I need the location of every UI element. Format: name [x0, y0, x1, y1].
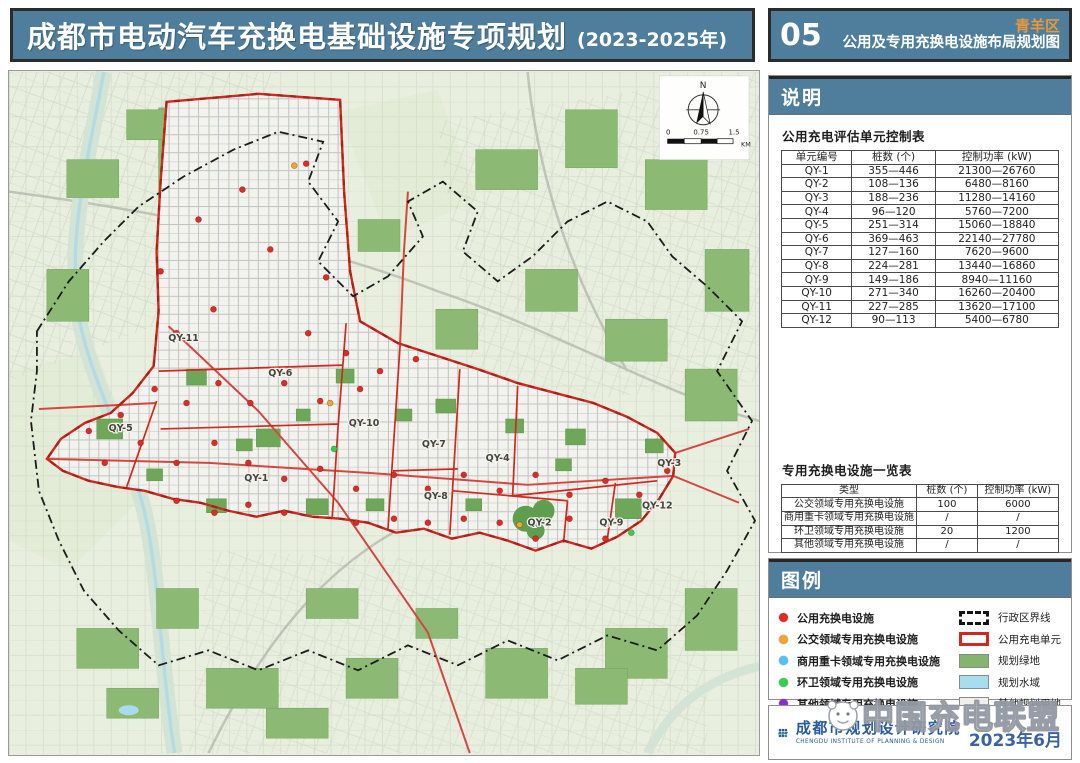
legend-item-public: 公用充换电设施	[779, 607, 959, 629]
institute-name-en: CHENGDU INSTITUTE OF PLANNING & DESIGN	[796, 739, 961, 745]
legend-panel: 图例 公用充换电设施 公交领域专用充换电设施 商用重卡领域专用充换电设施 环卫领…	[768, 558, 1072, 700]
legend-item-bus: 公交领域专用充换电设施	[779, 629, 959, 651]
facility-dot-public	[533, 536, 539, 542]
table-cell: 22140—27780	[935, 232, 1058, 246]
map-unit-label-QY-7: QY-7	[422, 439, 446, 450]
table-cell: 13440—16860	[935, 259, 1058, 273]
table-row: QY-5251—31415060—18840	[782, 218, 1059, 232]
facility-dot-public	[86, 428, 92, 434]
notes-panel: 说明 公用充电评估单元控制表 单元编号桩数 (个)控制功率 (kW)QY-135…	[768, 75, 1072, 553]
map-unit-label-QY-12: QY-12	[642, 501, 673, 512]
footer-box: 成都市规划设计研究院 CHENGDU INSTITUTE OF PLANNING…	[768, 705, 1072, 760]
special-charging-table: 类型桩数 (个)控制功率 (kW)公交领域专用充换电设施1006000商用重卡领…	[781, 484, 1059, 553]
legend-label: 规划绿地	[998, 653, 1040, 668]
facility-dot-public	[303, 161, 309, 167]
facility-dot-public	[567, 516, 573, 522]
table-cell: 224—281	[852, 259, 935, 273]
table-cell: 1200	[977, 525, 1058, 539]
facility-dot-public	[247, 400, 253, 406]
truck-dot-icon	[779, 656, 788, 665]
facility-dot-public	[152, 386, 158, 392]
north-label: N	[700, 81, 707, 91]
legend-label: 行政区界线	[998, 610, 1051, 625]
facility-dot-public	[174, 498, 180, 504]
table-cell: /	[977, 539, 1058, 553]
public-table-title: 公用充电评估单元控制表	[782, 126, 1071, 145]
legend-label: 公交领域专用充换电设施	[797, 631, 918, 647]
facility-dot-public	[210, 306, 216, 312]
facility-dot-public	[533, 472, 539, 478]
facility-dot-public	[245, 460, 251, 466]
table-cell: QY-11	[782, 300, 852, 314]
planning-map[interactable]: QY-11QY-5QY-6QY-1QY-10QY-7QY-4QY-8QY-2QY…	[8, 70, 760, 756]
legend-item-admin-boundary: 行政区界线	[959, 607, 1063, 629]
legend-item-truck: 商用重卡领域专用充换电设施	[779, 650, 959, 672]
table-row: QY-10271—34016260—20400	[782, 286, 1059, 300]
facility-dot-public	[461, 516, 467, 522]
legend-panel-title: 图例	[769, 559, 1071, 598]
facility-dot-public	[391, 516, 397, 522]
table-row: 单元编号桩数 (个)控制功率 (kW)	[782, 151, 1059, 165]
table-cell: 8940—11160	[935, 273, 1058, 287]
table-cell: 公交领域专用充换电设施	[782, 498, 917, 512]
facility-dot-public	[636, 492, 642, 498]
water-pond	[119, 705, 139, 715]
facility-dot-public	[245, 502, 251, 508]
table-cell: 6000	[977, 498, 1058, 512]
legend-item-green-land: 规划绿地	[959, 650, 1063, 672]
table-cell: QY-6	[782, 232, 852, 246]
sheet-number: 05	[780, 18, 822, 53]
table-cell: 控制功率 (kW)	[935, 151, 1058, 165]
table-cell: 227—285	[852, 300, 935, 314]
table-cell: 21300—26760	[935, 164, 1058, 178]
table-cell: QY-10	[782, 286, 852, 300]
facility-dot-public	[317, 466, 323, 472]
facility-dot-public	[425, 520, 431, 526]
institute-text: 成都市规划设计研究院 CHENGDU INSTITUTE OF PLANNING…	[796, 720, 961, 745]
public-dot-icon	[779, 613, 788, 622]
page-title: 成都市电动汽车充换电基础设施专项规划	[27, 14, 567, 56]
table-cell: 桩数 (个)	[917, 484, 978, 498]
facility-dot-public	[602, 478, 608, 484]
planning-sheet: 成都市电动汽车充换电基础设施专项规划 (2023-2025年) 05 青羊区 公…	[0, 0, 1080, 763]
map-canvas: QY-11QY-5QY-6QY-1QY-10QY-7QY-4QY-8QY-2QY…	[9, 71, 759, 755]
facility-dot-public	[138, 440, 144, 446]
table-cell: 商用重卡领域专用充换电设施	[782, 511, 917, 525]
table-cell: 90—113	[852, 314, 935, 328]
facility-dot-public	[391, 472, 397, 478]
facility-dot-public	[281, 476, 287, 482]
table-row: 环卫领域专用充换电设施201200	[782, 525, 1059, 539]
table-cell: 20	[917, 525, 978, 539]
table-cell: 188—236	[852, 191, 935, 205]
sheet-name: 公用及专用充换电设施布局规划图	[843, 35, 1061, 52]
map-unit-label-QY-2: QY-2	[528, 518, 552, 529]
facility-dot-public	[281, 380, 287, 386]
facility-dot-public	[357, 386, 363, 392]
facility-dot-public	[497, 520, 503, 526]
table-row: QY-9149—1868940—11160	[782, 273, 1059, 287]
table-row: 公交领域专用充换电设施1006000	[782, 498, 1059, 512]
facility-dot-public	[184, 400, 190, 406]
facility-dot-bus	[517, 522, 523, 528]
facility-dot-public	[567, 492, 573, 498]
facility-dot-bus	[291, 163, 297, 169]
special-table-title: 专用充换电设施一览表	[782, 460, 1071, 479]
main-title-bar: 成都市电动汽车充换电基础设施专项规划 (2023-2025年)	[10, 8, 755, 62]
institute-logo	[778, 713, 788, 753]
table-cell: 环卫领域专用充换电设施	[782, 525, 917, 539]
facility-dot-public	[377, 368, 383, 374]
water-icon	[959, 675, 989, 689]
table-cell: 其他领域专用充换电设施	[782, 539, 917, 553]
table-cell: 369—463	[852, 232, 935, 246]
table-row: QY-3188—23611280—14160	[782, 191, 1059, 205]
facility-dot-public	[497, 488, 503, 494]
legend-item-water: 规划水域	[959, 672, 1063, 694]
table-cell: 108—136	[852, 178, 935, 192]
table-cell: QY-1	[782, 164, 852, 178]
facility-dot-public	[413, 356, 419, 362]
table-cell: 127—160	[852, 246, 935, 260]
district-name: 青羊区	[843, 18, 1061, 35]
table-cell: 15060—18840	[935, 218, 1058, 232]
facility-dot-public	[281, 510, 287, 516]
scale-tick-max: 1.5	[729, 129, 740, 137]
table-cell: 控制功率 (kW)	[977, 484, 1058, 498]
map-unit-label-QY-1: QY-1	[244, 473, 268, 484]
facility-dot-public	[353, 486, 359, 492]
legend-label: 环卫领域专用充换电设施	[797, 674, 918, 690]
table-row: QY-8224—28113440—16860	[782, 259, 1059, 273]
table-cell: 单元编号	[782, 151, 852, 165]
legend-label: 公用充换电设施	[797, 610, 874, 626]
table-cell: 96—120	[852, 205, 935, 219]
map-unit-label-QY-11: QY-11	[168, 333, 199, 344]
table-cell: 7620—9600	[935, 246, 1058, 260]
sheet-header: 05 青羊区 公用及专用充换电设施布局规划图	[768, 8, 1072, 62]
table-row: QY-1290—1135400—6780	[782, 314, 1059, 328]
legend-label: 公用充电单元	[998, 632, 1061, 647]
facility-dot-public	[102, 460, 108, 466]
legend-item-sanitation: 环卫领域专用充换电设施	[779, 672, 959, 694]
table-row: QY-7127—1607620—9600	[782, 246, 1059, 260]
table-cell: /	[977, 511, 1058, 525]
table-cell: QY-3	[782, 191, 852, 205]
scale-tick-mid: 0.75	[693, 129, 709, 137]
map-unit-label-QY-6: QY-6	[268, 368, 292, 379]
sanitation-dot-icon	[779, 678, 788, 687]
map-unit-label-QY-10: QY-10	[349, 418, 380, 429]
facility-dot-public	[353, 520, 359, 526]
facility-dot-public	[211, 510, 217, 516]
map-unit-label-QY-3: QY-3	[657, 458, 681, 469]
table-row: 其他领域专用充换电设施//	[782, 539, 1059, 553]
facility-dot-public	[323, 274, 329, 280]
legend-body: 公用充换电设施 公交领域专用充换电设施 商用重卡领域专用充换电设施 环卫领域专用…	[769, 598, 1071, 715]
legend-area-items: 行政区界线 公用充电单元 规划绿地 规划水域 其他规划用地	[959, 607, 1063, 715]
facility-dot-public	[118, 412, 124, 418]
table-cell: 5760—7200	[935, 205, 1058, 219]
table-cell: 桩数 (个)	[852, 151, 935, 165]
table-row: QY-11227—28513620—17100	[782, 300, 1059, 314]
legend-item-charging-unit: 公用充电单元	[959, 629, 1063, 651]
table-cell: QY-5	[782, 218, 852, 232]
table-cell: 6480—8160	[935, 178, 1058, 192]
facility-dot-public	[343, 350, 349, 356]
map-unit-label-QY-9: QY-9	[599, 518, 623, 529]
table-row: QY-2108—1366480—8160	[782, 178, 1059, 192]
table-cell: QY-7	[782, 246, 852, 260]
facility-dot-public	[305, 330, 311, 336]
table-row: 类型桩数 (个)控制功率 (kW)	[782, 484, 1059, 498]
legend-point-items: 公用充换电设施 公交领域专用充换电设施 商用重卡领域专用充换电设施 环卫领域专用…	[779, 607, 959, 715]
north-scale-box: N 0 0.75 1.5 KM	[659, 76, 751, 160]
table-cell: 16260—20400	[935, 286, 1058, 300]
facility-dot-public	[267, 246, 273, 252]
page-title-years: (2023-2025年)	[577, 25, 727, 52]
facility-dot-public	[317, 398, 323, 404]
table-cell: 271—340	[852, 286, 935, 300]
public-charging-table: 单元编号桩数 (个)控制功率 (kW)QY-1355—44621300—2676…	[781, 150, 1059, 328]
table-cell: QY-2	[782, 178, 852, 192]
green-land-icon	[959, 654, 989, 668]
table-row: QY-6369—46322140—27780	[782, 232, 1059, 246]
admin-boundary-icon	[959, 611, 989, 625]
facility-dot-public	[215, 380, 221, 386]
sheet-title-block: 青羊区 公用及专用充换电设施布局规划图	[843, 18, 1061, 52]
table-cell: 类型	[782, 484, 917, 498]
bus-dot-icon	[779, 635, 788, 644]
table-cell: 5400—6780	[935, 314, 1058, 328]
facility-dot-public	[602, 536, 608, 542]
charging-unit-icon	[959, 632, 989, 646]
scale-unit: KM	[741, 141, 751, 149]
table-cell: /	[917, 511, 978, 525]
table-cell: 13620—17100	[935, 300, 1058, 314]
legend-label: 商用重卡领域专用充换电设施	[797, 653, 940, 669]
table-cell: QY-8	[782, 259, 852, 273]
table-cell: 355—446	[852, 164, 935, 178]
table-cell: QY-4	[782, 205, 852, 219]
table-cell: 149—186	[852, 273, 935, 287]
table-cell: QY-9	[782, 273, 852, 287]
facility-dot-sanitation	[628, 530, 634, 536]
institute-name-cn: 成都市规划设计研究院	[796, 720, 961, 737]
table-cell: /	[917, 539, 978, 553]
facility-dot-public	[174, 460, 180, 466]
table-row: QY-496—1205760—7200	[782, 205, 1059, 219]
facility-dot-public	[239, 187, 245, 193]
table-cell: 11280—14160	[935, 191, 1058, 205]
notes-panel-title: 说明	[769, 76, 1071, 115]
map-unit-label-QY-4: QY-4	[486, 453, 510, 464]
table-row: 商用重卡领域专用充换电设施//	[782, 511, 1059, 525]
facility-dot-sanitation	[331, 446, 337, 452]
facility-dot-public	[196, 217, 202, 223]
facility-dot-public	[158, 268, 164, 274]
map-unit-label-QY-5: QY-5	[109, 423, 133, 434]
facility-dot-bus	[327, 400, 333, 406]
facility-dot-public	[461, 472, 467, 478]
map-unit-label-QY-8: QY-8	[424, 491, 448, 502]
table-cell: 100	[917, 498, 978, 512]
table-cell: 251—314	[852, 218, 935, 232]
table-cell: QY-12	[782, 314, 852, 328]
table-row: QY-1355—44621300—26760	[782, 164, 1059, 178]
facility-dot-public	[211, 440, 217, 446]
sheet-date: 2023年6月	[969, 726, 1062, 751]
legend-label: 规划水域	[998, 675, 1040, 690]
scale-tick-0: 0	[666, 129, 670, 137]
